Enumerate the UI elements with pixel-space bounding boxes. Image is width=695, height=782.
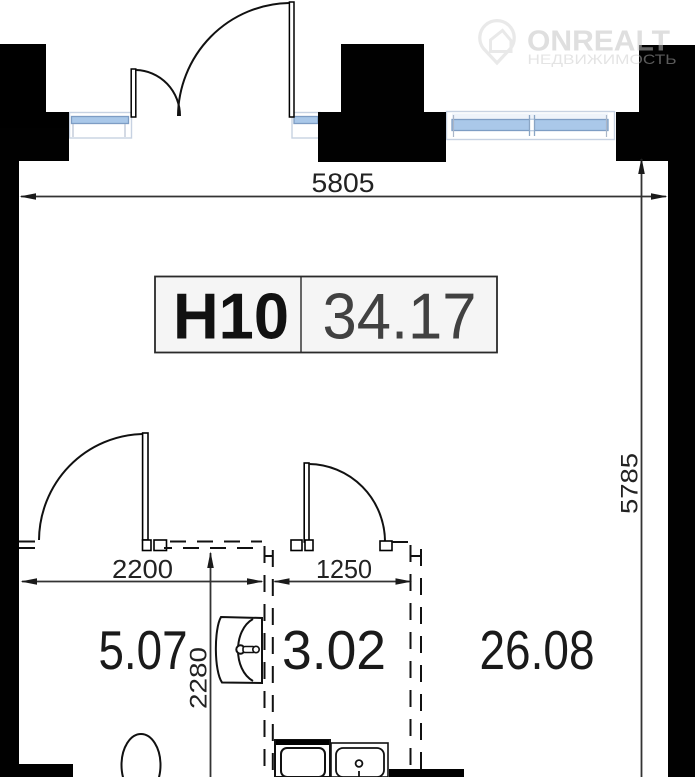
svg-text:H10: H10: [173, 280, 289, 353]
svg-text:5785: 5785: [617, 453, 644, 514]
svg-text:2280: 2280: [186, 647, 213, 709]
svg-text:5.07: 5.07: [99, 619, 188, 681]
svg-text:НЕДВИЖИМОСТЬ: НЕДВИЖИМОСТЬ: [528, 51, 677, 67]
svg-text:5805: 5805: [312, 168, 375, 198]
svg-text:1250: 1250: [316, 554, 372, 584]
svg-text:3.02: 3.02: [282, 619, 386, 681]
svg-text:2200: 2200: [112, 554, 173, 584]
svg-text:26.08: 26.08: [480, 619, 595, 681]
svg-text:34.17: 34.17: [323, 280, 477, 353]
